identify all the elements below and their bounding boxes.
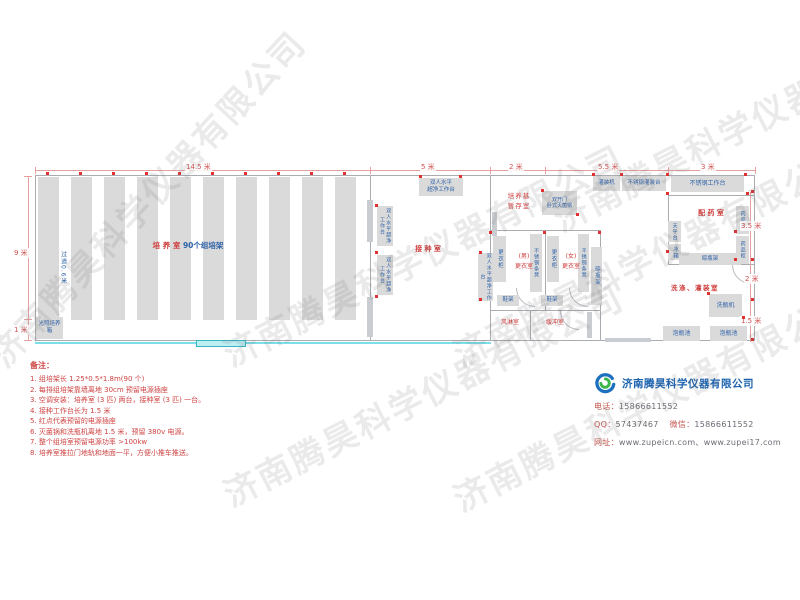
dimension-line [24, 340, 32, 341]
dimension-line [490, 167, 491, 174]
power-outlet-dot [489, 231, 492, 234]
note-item: 3. 空调安装：培养室 (3 匹) 两台，接种室 (3 匹) 一台。 [30, 395, 205, 406]
power-outlet-dot [751, 298, 754, 301]
dimension-line [35, 167, 36, 174]
light-incubator: 光照培养箱 [36, 317, 63, 339]
wall [530, 310, 531, 341]
culture-room-name: 培 养 室 [153, 241, 181, 250]
dim-top-storage: 2 米 [508, 162, 524, 172]
inoculation-room-label: 接 种 室 [398, 244, 458, 255]
power-outlet-dot [666, 173, 669, 176]
company-web-line: 网址：www.zupeicn.com、www.zupei17.com [594, 437, 784, 448]
power-outlet-dot [734, 230, 737, 233]
door-leaf [492, 212, 497, 236]
clean-bench-top: 双人水平超净工作台 [419, 178, 463, 196]
note-item: 1. 组培架长 1.25*0.5*1.8m(90 个) [30, 374, 205, 385]
filling-machine: 灌装机 [593, 176, 620, 191]
steel-worktable: 不锈钢工作台 [671, 176, 744, 192]
air-shower-label: 风淋室 [492, 318, 528, 328]
dim-top-filling: 5.5 米 [597, 162, 619, 172]
company-phone-line: 电话：15866611552 [594, 401, 784, 412]
wechat-value: 15866611552 [694, 420, 753, 429]
dimension-line [35, 170, 755, 171]
dimension-line [755, 167, 756, 174]
power-outlet-dot [598, 231, 601, 234]
dimension-line [24, 176, 32, 177]
pharmacy-room-label: 配 药 室 [688, 208, 734, 219]
clean-bench-line2: 超净工作台 [427, 187, 455, 194]
clean-bench-left-1: 双人水平超净工作台 [377, 206, 393, 246]
male-dressing-line1: (男) [506, 252, 542, 262]
male-locker: 更衣柜 [493, 236, 506, 282]
culture-rack [38, 177, 59, 320]
dim-top-inoculation: 5 米 [420, 162, 436, 172]
male-dressing-label: (男) 更衣室 [506, 252, 542, 271]
power-outlet-dot [620, 173, 623, 176]
power-outlet-dot [343, 172, 346, 175]
phone-value: 15866611552 [619, 402, 678, 411]
power-outlet-dot [666, 250, 669, 253]
female-dressing-line1: (女) [554, 252, 588, 262]
door-leaf [587, 312, 592, 338]
medium-storage-line1: 培养基 [496, 191, 542, 201]
power-outlet-dot [746, 192, 749, 195]
male-shoe-rack: 鞋架 [497, 295, 519, 306]
lab-floorplan-page: 济南腾昊科学仪器有限公司 济南腾昊科学仪器有限公司 济南腾昊科学仪器有限公司 济… [0, 0, 800, 600]
qq-label: QQ： [594, 420, 616, 429]
power-outlet-dot [459, 175, 462, 178]
power-outlet-dot [751, 338, 754, 341]
buffer-room-label: 缓冲室 [537, 318, 573, 328]
dim-top-culture: 14.5 米 [185, 162, 212, 172]
soaking-pool-2: 泡瓶池 [710, 326, 747, 341]
soaking-pool-1: 泡瓶池 [663, 326, 700, 341]
power-outlet-dot [479, 251, 482, 254]
clean-bench-left-2: 双人水平超净工作台 [377, 255, 393, 295]
web-value: www.zupeicn.com、www.zupei17.com [619, 438, 781, 447]
power-outlet-dot [666, 192, 669, 195]
power-outlet-dot [419, 175, 422, 178]
note-item: 4. 接种工作台长为 1.5 米 [30, 406, 205, 417]
power-outlet-dot [592, 173, 595, 176]
male-dressing-line2: 更衣室 [506, 262, 542, 272]
female-dressing-line2: 更衣室 [554, 262, 588, 272]
culture-rack [269, 177, 290, 320]
notes-section: 备注： 1. 组培架长 1.25*0.5*1.8m(90 个) 2. 每排组培架… [30, 360, 205, 458]
dimension-line [28, 176, 29, 341]
power-outlet-dot [178, 172, 181, 175]
dimension-line [545, 167, 546, 174]
dim-left-main: 9 米 [13, 248, 29, 258]
web-label: 网址： [594, 438, 619, 447]
power-outlet-dot [375, 251, 378, 254]
female-shoe-rack: 鞋架 [541, 295, 563, 306]
power-outlet-dot [543, 231, 546, 234]
bottle-drying-rack-horizontal: 晾瓶架 [679, 253, 741, 265]
dim-right-mid: 2 米 [744, 274, 760, 284]
culture-rack [302, 177, 323, 320]
sterilizer: 双开门卧式灭菌锅 [542, 191, 577, 215]
culture-room-racks-label: 90个组培架 [183, 241, 223, 250]
company-name: 济南腾昊科学仪器有限公司 [622, 376, 754, 391]
power-outlet-dot [375, 295, 378, 298]
notes-title: 备注： [30, 360, 205, 371]
power-outlet-dot [46, 172, 49, 175]
culture-rack [104, 177, 125, 320]
wechat-label: 微信： [669, 420, 694, 429]
watermark-text: 济南腾昊科学仪器有限公司 [544, 0, 800, 241]
sterilizer-line2: 卧式灭菌锅 [547, 203, 572, 209]
qq-value: 57437467 [616, 420, 659, 429]
company-qq-line: QQ：57437467 微信：15866611552 [594, 419, 784, 430]
steel-filling-table: 不锈钢灌装台 [622, 176, 666, 191]
washing-room-label: 洗涤、灌装室 [652, 283, 738, 293]
dim-left-bottom: 1 米 [13, 325, 29, 335]
culture-room-label: 培 养 室 90个组培架 [128, 240, 248, 252]
power-outlet-dot [541, 189, 544, 192]
medium-storage-label: 培养基 暂存室 [496, 191, 542, 212]
dimension-line [24, 319, 32, 320]
power-outlet-dot [211, 172, 214, 175]
power-outlet-dot [751, 190, 754, 193]
dim-top-worktable: 3 米 [700, 162, 716, 172]
dimension-line [370, 167, 371, 174]
note-item: 2. 每排组培架靠墙离地 30cm 预留电源插座 [30, 385, 205, 396]
power-outlet-dot [742, 316, 745, 319]
female-dressing-label: (女) 更衣室 [554, 252, 588, 271]
clean-bench-line1: 双人水平 [427, 180, 455, 187]
culture-rack [71, 177, 92, 320]
note-item: 7. 整个组培室预留电源功率 >100kw [30, 437, 205, 448]
power-outlet-dot [145, 172, 148, 175]
door-leaf [605, 338, 651, 342]
bottle-drying-rack-vertical: 晾瓶架 [591, 247, 602, 305]
power-outlet-dot [479, 298, 482, 301]
note-item: 5. 红点代表预留的电源插座 [30, 416, 205, 427]
power-outlet-dot [79, 172, 82, 175]
sliding-door [196, 340, 246, 347]
power-outlet-dot [576, 213, 579, 216]
aisle-label: 过道0.6米 [58, 228, 68, 308]
power-outlet-dot [310, 172, 313, 175]
company-info: 济南腾昊科学仪器有限公司 电话：15866611552 QQ：57437467 … [594, 372, 784, 448]
door-leaf [367, 297, 373, 337]
wall [490, 310, 601, 311]
note-item: 6. 灭菌锅和洗瓶机离地 1.5 米，预留 380v 电源。 [30, 427, 205, 438]
note-item: 8. 培养室推拉门地轨和地面一平，方便小推车推送。 [30, 448, 205, 459]
culture-rack [335, 177, 356, 320]
power-outlet-dot [707, 292, 710, 295]
clean-bench-right: 双人水平超净工作台 [478, 253, 493, 301]
wall [668, 195, 755, 196]
power-outlet-dot [751, 258, 754, 261]
power-outlet-dot [375, 204, 378, 207]
power-outlet-dot [744, 173, 747, 176]
dim-right-top: 3.5 米 [740, 221, 762, 231]
phone-label: 电话： [594, 402, 619, 411]
door-leaf [367, 200, 373, 242]
sliding-door-track [35, 342, 491, 344]
company-logo-icon [594, 372, 616, 394]
power-outlet-dot [112, 172, 115, 175]
power-outlet-dot [734, 258, 737, 261]
medium-storage-line2: 暂存室 [496, 201, 542, 211]
power-outlet-dot [277, 172, 280, 175]
balance-table: 天平台 [668, 221, 681, 242]
power-outlet-dot [244, 172, 247, 175]
bottle-washer: 洗瓶机 [709, 294, 742, 317]
